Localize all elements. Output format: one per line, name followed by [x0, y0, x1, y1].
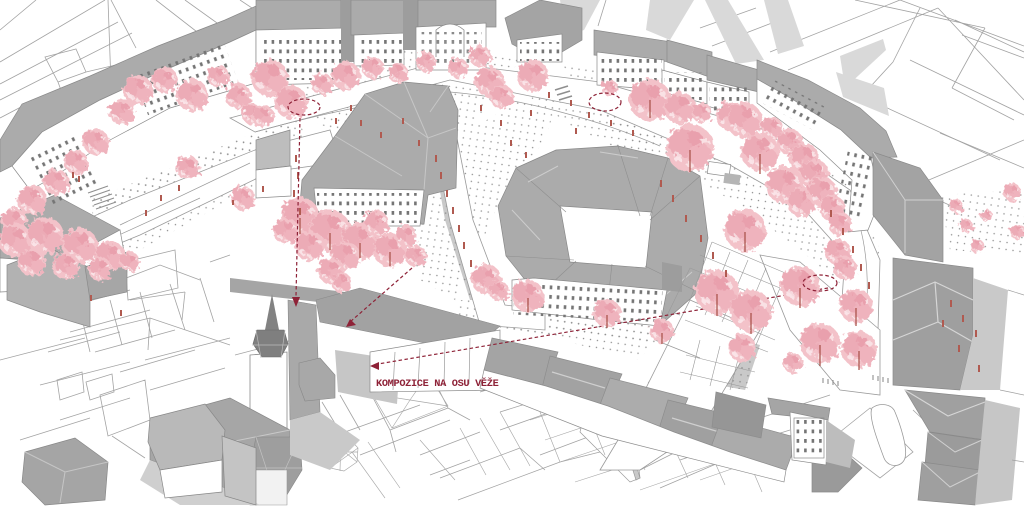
svg-text:KOMPOZICE NA OSU VĚŽE: KOMPOZICE NA OSU VĚŽE: [376, 376, 499, 390]
